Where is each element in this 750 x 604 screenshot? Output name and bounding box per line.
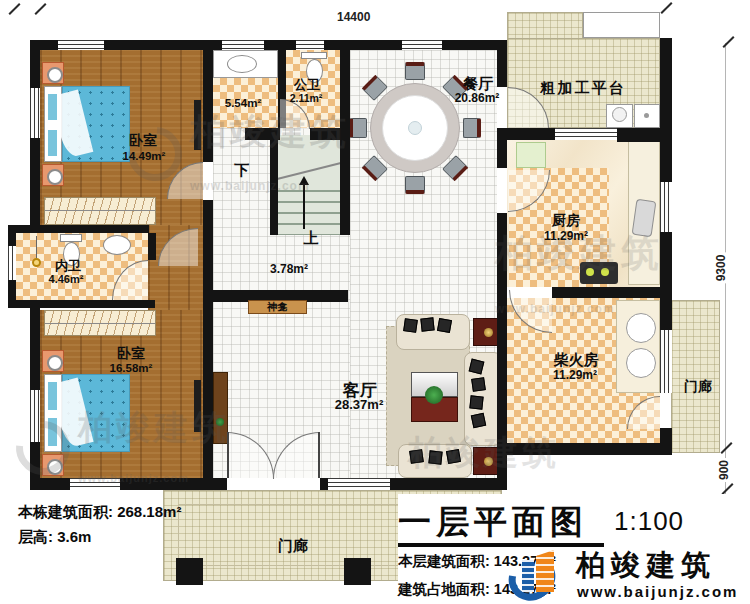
window — [70, 478, 120, 490]
door-leaf — [227, 432, 229, 478]
dimension-tick — [722, 36, 734, 48]
floor-plan-canvas: 柏竣建筑 www.baijunjz.com 柏竣建筑 www.baijunjz.… — [0, 0, 750, 604]
wall — [8, 300, 155, 308]
drawing-scale: 1:100 — [614, 506, 684, 537]
wall — [203, 50, 213, 162]
sink — [227, 55, 257, 73]
stairs-up-label: 上 — [304, 229, 319, 248]
toilet-tank — [301, 52, 327, 59]
window — [555, 128, 617, 140]
plant — [425, 386, 443, 404]
sofa-pillow — [471, 413, 486, 428]
fridge — [516, 142, 546, 168]
shrine-label: 神龛 — [267, 300, 287, 314]
sofa-pillow — [428, 450, 442, 464]
dimension-tick — [660, 2, 672, 14]
info-building-area: 本栋建筑面积: 268.18m² — [18, 503, 181, 522]
window — [58, 40, 104, 50]
window — [402, 40, 442, 50]
pillow — [46, 128, 59, 158]
porch-column — [176, 558, 203, 585]
window — [222, 40, 264, 50]
light-pull-knob — [32, 258, 41, 267]
pillow — [46, 380, 59, 412]
window — [660, 330, 672, 393]
light-cord — [36, 236, 37, 258]
nightstand — [42, 454, 64, 476]
porch-column — [344, 558, 371, 585]
wardrobe — [44, 310, 156, 336]
dimension-tick — [720, 442, 732, 454]
floor-platform-upper — [507, 12, 583, 40]
page-title: 一层平面图 — [398, 500, 588, 545]
nightstand — [42, 164, 64, 186]
room-label-firewood: 柴火房 — [554, 351, 599, 370]
window — [30, 390, 40, 442]
tv-bedroom1 — [194, 100, 201, 150]
wall — [497, 213, 507, 478]
room-area-dining: 20.86m² — [455, 91, 500, 105]
wall — [270, 135, 278, 235]
stair-arrow-shaft — [303, 183, 305, 229]
window — [8, 246, 16, 280]
wall — [617, 128, 662, 142]
wall — [310, 128, 350, 140]
chair — [405, 176, 425, 194]
stove-burner — [586, 268, 594, 276]
window — [296, 40, 324, 50]
room-label-platform: 粗加工平台 — [541, 79, 626, 98]
room-area-living: 28.37m² — [335, 397, 383, 412]
stove-burner — [601, 268, 609, 276]
room-area-hall: 3.78m² — [270, 262, 308, 276]
platform-ledge — [583, 12, 660, 38]
room-label-porch-bottom: 门廊 — [278, 537, 308, 556]
dimension-right-main: 9300 — [714, 253, 728, 284]
wall — [552, 287, 660, 298]
stair-arrow-head — [299, 176, 309, 185]
dimension-right-porch: 900 — [717, 458, 731, 482]
washer-lid — [612, 107, 627, 122]
sofa-pillow — [409, 449, 424, 464]
wall — [660, 38, 672, 182]
logo-building-orange — [536, 550, 554, 592]
wall — [497, 128, 507, 168]
sofa-pillow — [437, 318, 452, 333]
pillow — [46, 416, 59, 448]
door-leaf — [318, 432, 320, 478]
info-floor-height: 层高: 3.6m — [18, 528, 91, 547]
plant-small — [216, 418, 224, 426]
wall — [507, 128, 555, 140]
floor-porch-right — [671, 300, 720, 453]
title-underline — [398, 543, 604, 547]
sofa-pillow — [469, 395, 483, 409]
room-area-inner-bath: 4.46m² — [49, 273, 84, 285]
nightstand — [42, 350, 64, 372]
room-area-bedroom1: 14.49m² — [123, 150, 166, 162]
chair — [405, 62, 425, 80]
room-area-firewood: 11.29m² — [553, 368, 597, 382]
room-area-bedroom2: 16.58m² — [110, 362, 153, 374]
entrance-opening — [227, 478, 320, 490]
wok-stove — [626, 348, 656, 378]
chair — [349, 118, 367, 138]
stairs-down-label: 下 — [235, 161, 250, 180]
drain-dot — [644, 113, 649, 118]
sofa-pillow — [403, 318, 418, 333]
window — [328, 478, 390, 490]
room-label-bedroom1: 卧室 — [129, 132, 157, 150]
wall — [497, 40, 507, 87]
room-area-washroom: 5.54m² — [225, 97, 261, 109]
logo-building-blue — [522, 560, 534, 592]
wall — [8, 225, 149, 233]
sofa-pillow — [446, 449, 461, 464]
sink — [103, 235, 131, 255]
wardrobe — [44, 197, 156, 225]
pillow — [46, 92, 59, 122]
tv-cabinet — [213, 372, 228, 444]
room-label-kitchen: 厨房 — [552, 212, 580, 230]
toilet-tank — [60, 234, 82, 242]
dimension-tick — [34, 3, 46, 15]
dimension-top: 14400 — [337, 10, 370, 24]
tv-bedroom2 — [194, 380, 201, 432]
sofa-pillow — [471, 377, 486, 392]
wok-stove — [626, 313, 656, 343]
brand-name: 柏竣建筑 — [576, 546, 716, 586]
chair — [463, 118, 481, 138]
nightstand — [42, 62, 64, 84]
title-block: 一层平面图 1:100 本层建筑面积: 143.27m² 建筑占地面积: 143… — [398, 494, 750, 604]
dining-table-hub — [408, 121, 422, 135]
window — [660, 182, 672, 232]
wall — [660, 232, 672, 330]
brand-url: www.baijunjz.com — [577, 583, 738, 600]
wall — [507, 443, 672, 455]
window — [30, 88, 40, 138]
sofa-pillow — [420, 317, 434, 331]
brand-logo-icon — [506, 546, 568, 602]
dimension-tick — [8, 3, 20, 15]
room-label-porch-right: 门廊 — [684, 378, 712, 396]
wall — [148, 233, 156, 260]
room-label-bedroom2: 卧室 — [117, 345, 145, 363]
room-area-public-bath: 2.11m² — [290, 92, 323, 104]
wall — [203, 200, 213, 478]
room-area-kitchen: 11.29m² — [544, 229, 588, 243]
wall — [340, 50, 350, 235]
